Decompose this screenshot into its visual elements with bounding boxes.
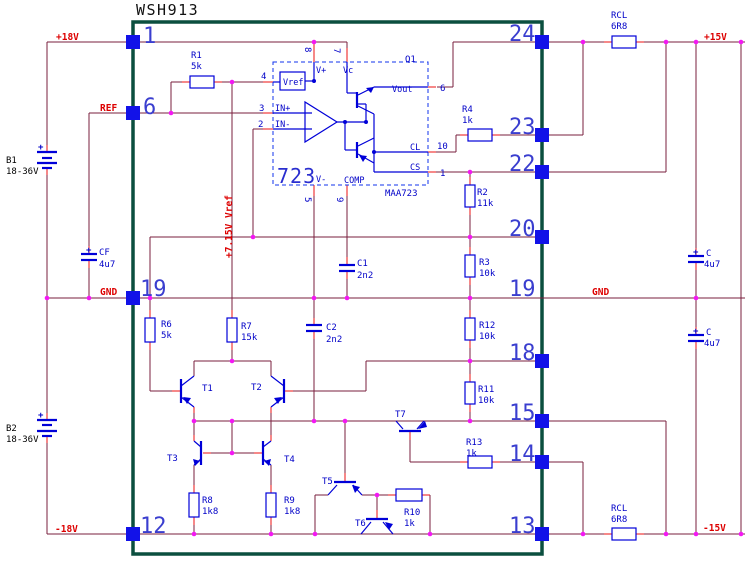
capacitor-c-neg-name: C: [706, 328, 711, 338]
capacitor-c-pos-value: 4u7: [704, 260, 720, 270]
capacitor-cf-name: CF: [99, 248, 110, 258]
resistor-r13-value: 1k: [466, 449, 477, 459]
ic-pin-7: 7: [331, 48, 341, 53]
transistor-t7-label: T7: [395, 410, 406, 420]
ic-port-in-plus: IN+: [275, 104, 290, 114]
ic-pin-10: 10: [437, 142, 448, 152]
resistor-r6-name: R6: [161, 320, 172, 330]
transistor-t3-label: T3: [167, 454, 178, 464]
pad-pin-22: [535, 165, 549, 179]
ic-pin-5: 5: [302, 197, 312, 202]
resistor-r6-value: 5k: [161, 331, 172, 341]
resistor-r9-value: 1k8: [284, 507, 300, 517]
net-label-minus18v: -18V: [55, 524, 78, 535]
schematic-page: WSH913 +18V REF GND -18V +15V GND -15V +…: [0, 0, 747, 567]
pin-number-24: 24: [509, 22, 536, 47]
resistor-rcl-top-name: RCL: [611, 11, 627, 21]
capacitor-c2-name: C2: [326, 323, 337, 333]
pin-number-18: 18: [509, 341, 536, 366]
capacitor-c2-value: 2n2: [326, 335, 342, 345]
resistor-r11-name: R11: [478, 385, 494, 395]
pad-pin-23: [535, 128, 549, 142]
resistor-r9-name: R9: [284, 496, 295, 506]
pad-pin-6: [126, 106, 140, 120]
pin-number-13: 13: [509, 514, 536, 539]
resistor-r13-name: R13: [466, 438, 482, 448]
resistor-r12-value: 10k: [479, 332, 496, 342]
resistor-r7-value: 15k: [241, 333, 258, 343]
capacitor-c1-value: 2n2: [357, 271, 373, 281]
capacitor-cf-polarity: +: [86, 246, 92, 256]
pin-number-14: 14: [509, 442, 536, 467]
pad-pin-24: [535, 35, 549, 49]
transistor-t5-label: T5: [322, 477, 333, 487]
capacitor-c-pos-name: C: [706, 249, 711, 259]
resistor-r8-name: R8: [202, 496, 213, 506]
pad-pin-15: [535, 414, 549, 428]
resistor-rcl-top-value: 6R8: [611, 22, 627, 32]
resistor-r12-name: R12: [479, 321, 495, 331]
ic-port-vref: Vref: [283, 78, 303, 88]
pad-pin-13: [535, 527, 549, 541]
ic-port-cl: CL: [410, 143, 420, 153]
transistor-t1-label: T1: [202, 384, 213, 394]
battery-b2-value: 18-36V: [6, 435, 39, 445]
pad-pin-1: [126, 35, 140, 49]
battery-b1-name: B1: [6, 156, 17, 166]
battery-b2-polarity: +: [38, 411, 44, 421]
ic-pin-4: 4: [261, 72, 266, 82]
ic-port-vc: Vc: [343, 66, 353, 76]
capacitor-c-neg-polarity: +: [693, 327, 699, 337]
pin-number-1: 1: [143, 24, 156, 49]
pin-number-22: 22: [509, 152, 536, 177]
pad-pin-14: [535, 455, 549, 469]
capacitor-cf-value: 4u7: [99, 260, 115, 270]
pin-number-23: 23: [509, 115, 536, 140]
battery-b2-name: B2: [6, 424, 17, 434]
resistor-r1-name: R1: [191, 51, 202, 61]
pad-pin-18: [535, 354, 549, 368]
resistor-r10-value: 1k: [404, 519, 415, 529]
ic-pin-9: 9: [334, 197, 344, 202]
resistor-rcl-bottom-name: RCL: [611, 504, 627, 514]
ic-pin-8: 8: [302, 47, 312, 52]
resistor-r3-name: R3: [479, 258, 490, 268]
pin-number-19-left: 19: [140, 277, 167, 302]
transistor-t2-label: T2: [251, 383, 262, 393]
ic-port-vminus: V-: [316, 175, 326, 185]
capacitor-c-pos-polarity: +: [693, 248, 699, 258]
canvas-background: [0, 0, 747, 567]
resistor-r2-value: 11k: [477, 199, 494, 209]
resistor-r8-value: 1k8: [202, 507, 218, 517]
resistor-r11-value: 10k: [478, 396, 495, 406]
pin-number-6: 6: [143, 95, 156, 120]
net-label-ref: REF: [100, 103, 117, 114]
ic-pin-1: 1: [440, 169, 445, 179]
ic-pin-6: 6: [440, 84, 445, 94]
module-title: WSH913: [136, 1, 199, 19]
ic-q1-label: Q1: [405, 55, 416, 65]
resistor-r10-name: R10: [404, 508, 420, 518]
net-label-vref-rail: +7.15V Vref: [224, 195, 235, 258]
resistor-r2-name: R2: [477, 188, 488, 198]
capacitor-c-neg-value: 4u7: [704, 339, 720, 349]
ic-723-part: MAA723: [385, 189, 418, 199]
schematic-canvas: WSH913 +18V REF GND -18V +15V GND -15V +…: [0, 0, 747, 567]
ic-port-comp: COMP: [344, 176, 364, 186]
ic-port-cs: CS: [410, 163, 420, 173]
battery-b1-value: 18-36V: [6, 167, 39, 177]
pad-pin-19-left: [126, 291, 140, 305]
ic-pin-3: 3: [259, 104, 264, 114]
pin-number-15: 15: [509, 401, 536, 426]
ic-port-in-minus: IN-: [275, 120, 290, 130]
resistor-r4-name: R4: [462, 105, 473, 115]
net-label-gnd-right: GND: [592, 287, 609, 298]
pad-pin-20: [535, 230, 549, 244]
net-label-plus15v: +15V: [704, 32, 727, 43]
capacitor-c1-name: C1: [357, 259, 368, 269]
resistor-r4-value: 1k: [462, 116, 473, 126]
resistor-r7-name: R7: [241, 322, 252, 332]
pin-number-12: 12: [140, 514, 167, 539]
transistor-t4-label: T4: [284, 455, 295, 465]
pin-number-19-right: 19: [509, 277, 536, 302]
transistor-t6-label: T6: [355, 519, 366, 529]
net-label-minus15v: -15V: [703, 523, 726, 534]
ic-port-vout: Vout: [392, 85, 412, 95]
resistor-r1-value: 5k: [191, 62, 202, 72]
battery-b1-polarity: +: [38, 143, 44, 153]
net-label-plus18v: +18V: [56, 32, 79, 43]
pad-pin-12: [126, 527, 140, 541]
ic-port-vplus: V+: [316, 66, 326, 76]
resistor-r3-value: 10k: [479, 269, 496, 279]
pin-number-20: 20: [509, 217, 536, 242]
ic-723-number: 723: [277, 164, 316, 188]
ic-pin-2: 2: [258, 120, 263, 130]
resistor-rcl-bottom-value: 6R8: [611, 515, 627, 525]
net-label-gnd-left: GND: [100, 287, 117, 298]
